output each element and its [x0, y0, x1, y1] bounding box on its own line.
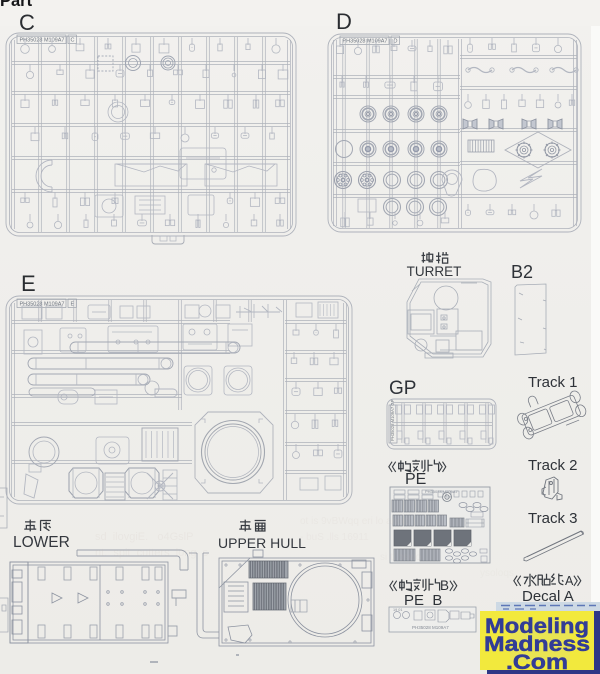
svg-text:nt. spit cutters long s: nt. spit cutters long s: [95, 547, 209, 559]
svg-text:C: C: [71, 38, 75, 44]
svg-text:Track 1: Track 1: [528, 374, 577, 391]
svg-text:PH35028 M109A7: PH35028 M109A7: [412, 625, 449, 630]
svg-text:19 01: 19 01: [393, 608, 403, 612]
svg-text:D: D: [336, 9, 352, 34]
svg-text:.Com: .Com: [506, 651, 568, 674]
svg-text:E: E: [21, 271, 36, 296]
svg-text:B2: B2: [511, 262, 533, 282]
svg-text:- buS .lls 16911: - buS .lls 16911: [300, 532, 369, 543]
svg-text:UPPER HULL: UPPER HULL: [218, 535, 306, 551]
svg-text:sd ilovgiE. o4GslP: sd ilovgiE. o4GslP: [95, 531, 193, 543]
svg-text:C: C: [19, 10, 35, 35]
svg-text:TURRET: TURRET: [407, 264, 462, 279]
svg-text:GP: GP: [389, 378, 416, 399]
svg-text:si ti bswo: si ti bswo: [380, 552, 422, 563]
svg-text:PH35028 M109A7: PH35028 M109A7: [343, 39, 388, 45]
svg-text:PE: PE: [405, 471, 426, 488]
svg-text:PE_B: PE_B: [404, 592, 442, 609]
svg-text:Track 2: Track 2: [528, 457, 577, 474]
svg-text:ysoloqs: ysoloqs: [480, 568, 514, 579]
svg-text:A: A: [565, 574, 574, 588]
svg-text:PH35028 M109A7: PH35028 M109A7: [20, 38, 65, 44]
svg-text:B: B: [440, 578, 449, 593]
svg-text:PH35028 M109A7 GP: PH35028 M109A7 GP: [390, 399, 395, 441]
svg-text:LOWER: LOWER: [13, 534, 70, 551]
svg-text:Part: Part: [0, 0, 33, 10]
svg-text:Track 3: Track 3: [528, 510, 577, 527]
svg-text:ot is 9vBWqq eri lo anoit: ot is 9vBWqq eri lo anoit: [300, 516, 408, 527]
